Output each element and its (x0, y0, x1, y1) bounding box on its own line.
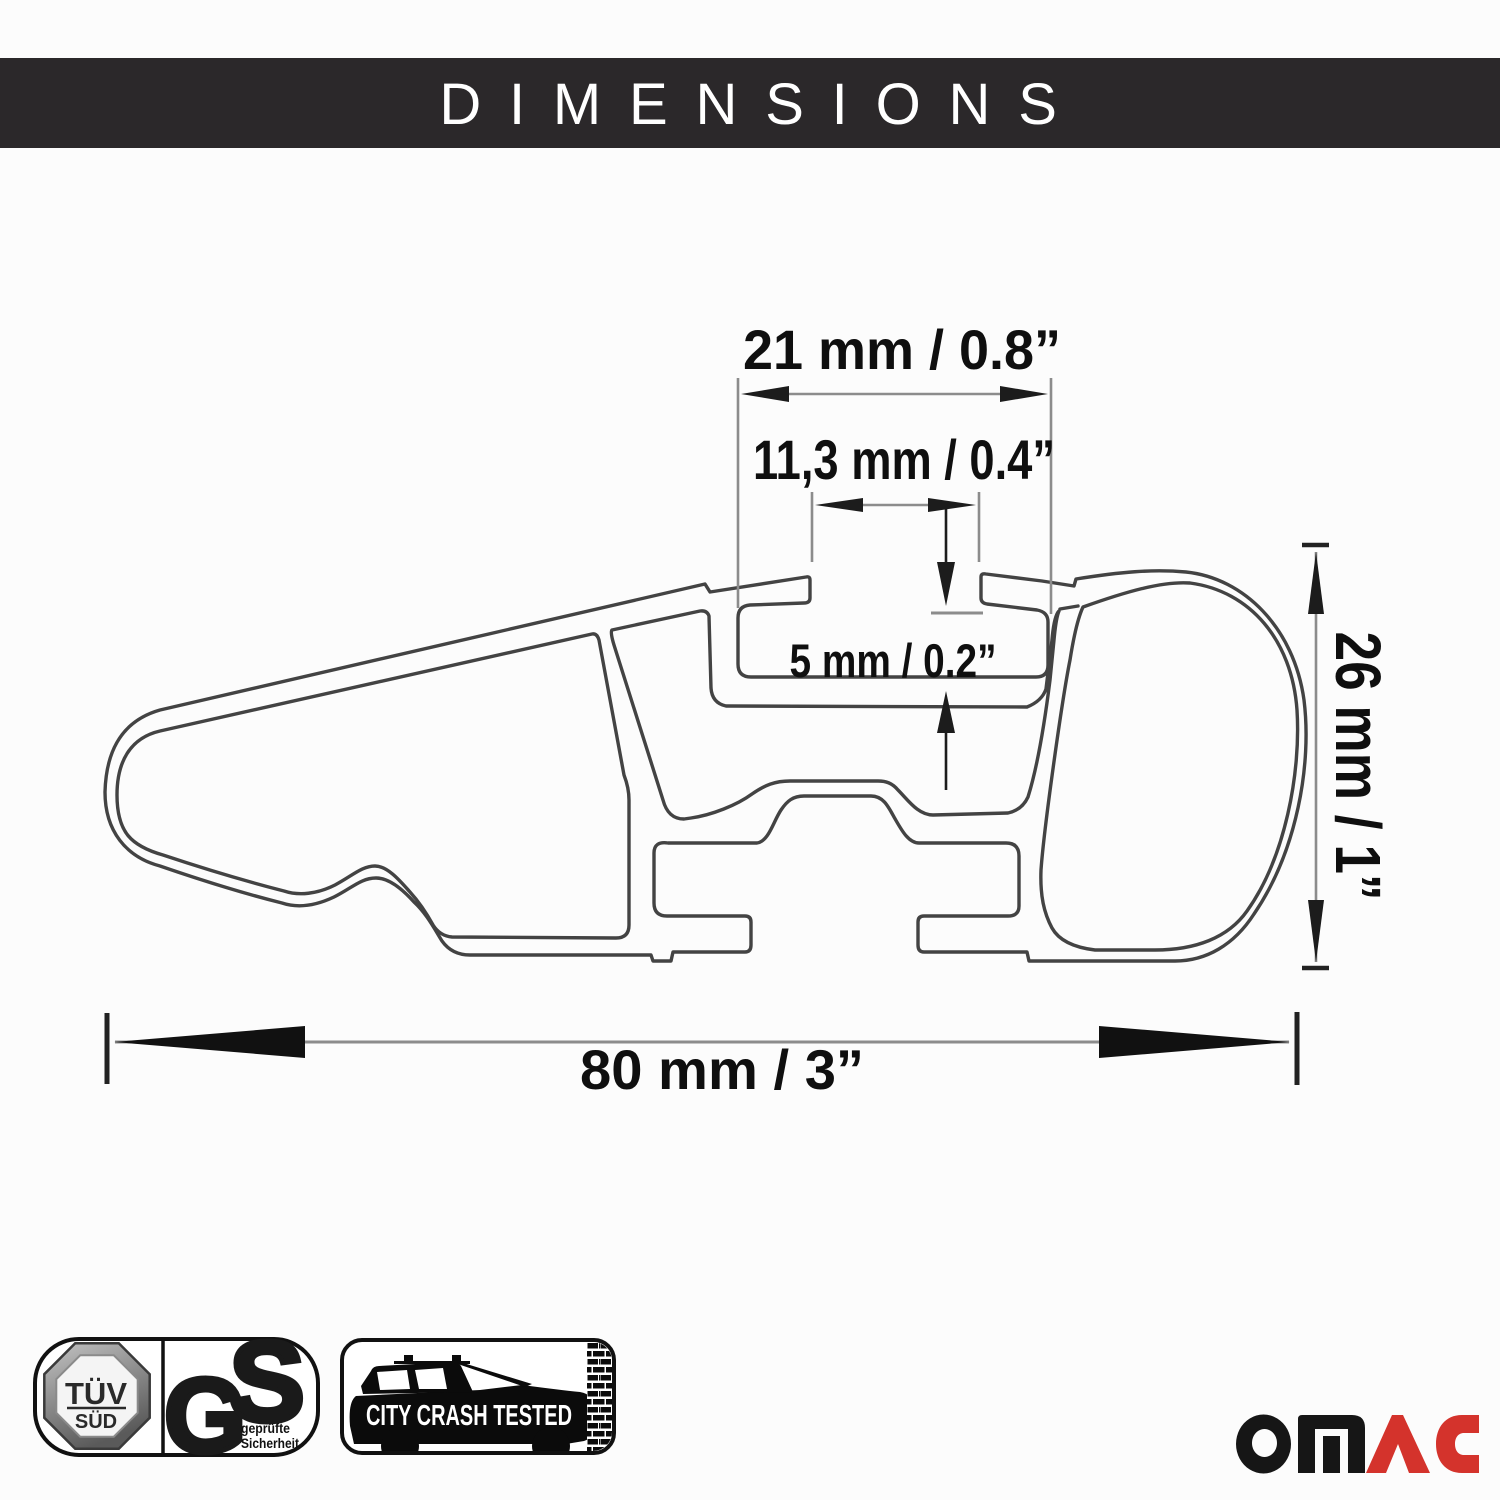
svg-text:80 mm / 3”: 80 mm / 3” (580, 1038, 864, 1101)
svg-text:5 mm / 0.2”: 5 mm / 0.2” (790, 634, 997, 687)
svg-text:geprüfte: geprüfte (241, 1420, 290, 1436)
svg-text:26 mm / 1”: 26 mm / 1” (1322, 632, 1394, 901)
svg-text:CITY CRASH TESTED: CITY CRASH TESTED (366, 1400, 572, 1432)
svg-text:DIMENSIONS: DIMENSIONS (439, 72, 1084, 137)
svg-text:SÜD: SÜD (75, 1410, 117, 1433)
svg-text:TÜV: TÜV (65, 1376, 127, 1411)
svg-text:21 mm / 0.8”: 21 mm / 0.8” (743, 318, 1061, 381)
svg-text:11,3 mm / 0.4”: 11,3 mm / 0.4” (753, 428, 1055, 491)
svg-text:Sicherheit: Sicherheit (241, 1435, 299, 1451)
